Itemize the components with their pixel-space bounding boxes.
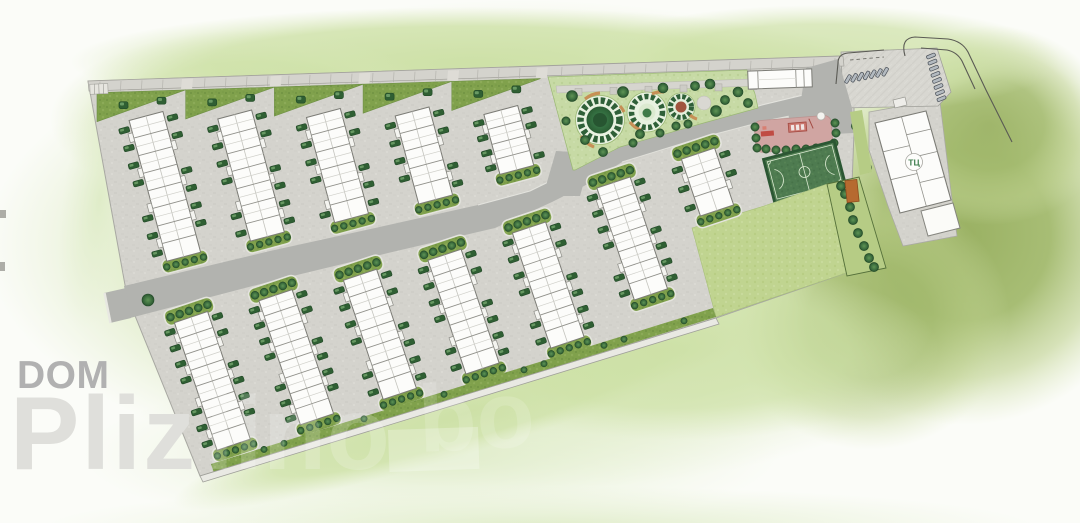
svg-text:Pliz: Pliz [10,376,197,492]
svg-text:lino: lino [205,376,390,492]
svg-text:ТЦ: ТЦ [908,158,920,168]
